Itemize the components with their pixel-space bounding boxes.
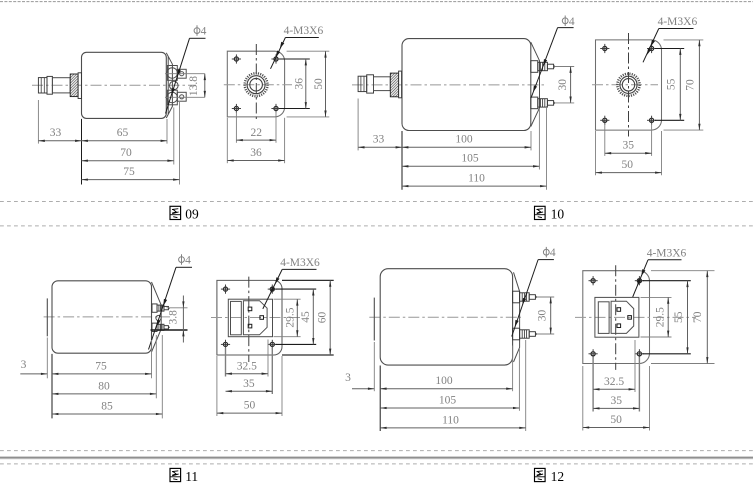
svg-text:11: 11 [185, 469, 198, 484]
svg-text:110: 110 [468, 172, 485, 184]
svg-text:100: 100 [455, 134, 473, 146]
svg-text:4: 4 [201, 26, 207, 38]
svg-text:85: 85 [101, 400, 113, 412]
svg-text:75: 75 [123, 166, 135, 178]
svg-text:65: 65 [117, 127, 129, 139]
svg-text:36: 36 [250, 147, 262, 159]
svg-text:80: 80 [98, 380, 110, 392]
svg-text:3: 3 [21, 359, 27, 371]
svg-text:4-M3X6: 4-M3X6 [284, 25, 324, 37]
svg-text:55: 55 [673, 311, 685, 323]
svg-text:32.5: 32.5 [604, 376, 624, 388]
svg-text:33: 33 [50, 127, 62, 139]
svg-text:22: 22 [250, 127, 262, 139]
svg-text:45: 45 [300, 311, 312, 323]
svg-text:110: 110 [442, 414, 459, 426]
svg-text:35: 35 [611, 395, 623, 407]
svg-text:75: 75 [95, 360, 107, 372]
svg-text:70: 70 [692, 311, 704, 323]
svg-text:36: 36 [293, 78, 305, 90]
svg-text:09: 09 [185, 207, 199, 222]
svg-text:30: 30 [557, 79, 569, 91]
svg-text:105: 105 [439, 394, 457, 406]
svg-text:60: 60 [317, 312, 329, 324]
svg-text:100: 100 [435, 375, 453, 387]
svg-text:50: 50 [313, 78, 325, 90]
svg-text:50: 50 [610, 414, 622, 426]
svg-text:29.5: 29.5 [285, 307, 297, 327]
svg-text:4: 4 [569, 16, 575, 28]
svg-text:70: 70 [120, 147, 132, 159]
svg-text:32.5: 32.5 [237, 361, 257, 373]
svg-text:30: 30 [537, 310, 549, 322]
svg-text:12: 12 [551, 469, 565, 484]
svg-text:50: 50 [621, 159, 633, 171]
svg-text:35: 35 [243, 378, 255, 390]
svg-text:4-M3X6: 4-M3X6 [647, 248, 687, 260]
svg-text:50: 50 [244, 400, 256, 412]
svg-text:3.8: 3.8 [168, 310, 180, 325]
svg-text:13.8: 13.8 [188, 76, 200, 96]
svg-text:10: 10 [551, 207, 565, 222]
svg-text:4-M3X6: 4-M3X6 [280, 257, 320, 269]
svg-text:55: 55 [666, 78, 678, 90]
svg-text:4: 4 [550, 247, 556, 259]
svg-text:105: 105 [461, 153, 479, 165]
svg-text:29.5: 29.5 [654, 307, 666, 327]
svg-text:35: 35 [622, 140, 634, 152]
svg-text:33: 33 [373, 134, 385, 146]
svg-text:70: 70 [685, 79, 697, 91]
svg-text:3: 3 [345, 372, 351, 384]
svg-text:4-M3X6: 4-M3X6 [658, 16, 698, 28]
svg-text:4: 4 [185, 255, 191, 267]
